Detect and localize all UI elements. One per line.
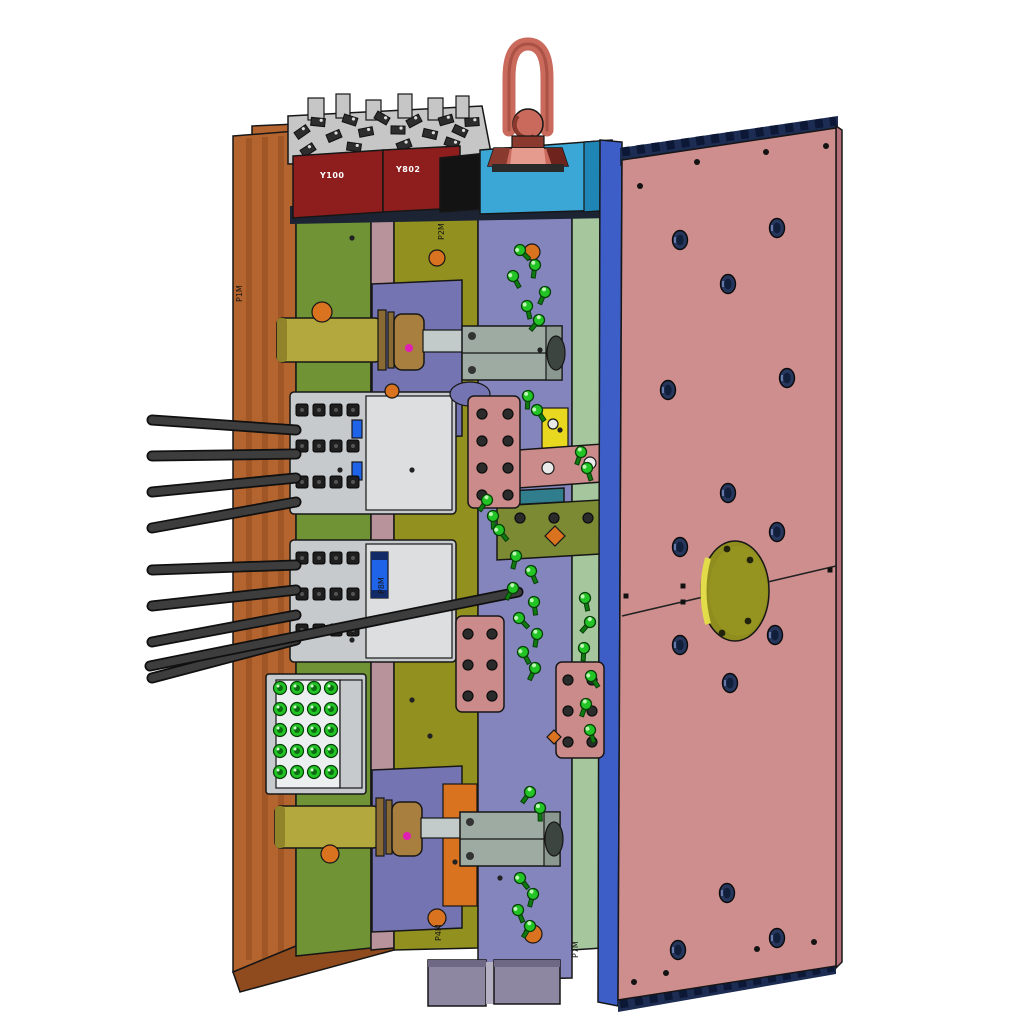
- screw-dot: [427, 733, 432, 738]
- screw-head: [548, 419, 558, 429]
- coupler-highlight: [328, 748, 331, 751]
- fitting-body: [578, 642, 590, 654]
- coupler-highlight: [294, 685, 297, 688]
- part-mark: P1M: [235, 285, 244, 302]
- fitting-body: [529, 259, 541, 271]
- corner-screw: [694, 159, 700, 165]
- parting-tick: [681, 600, 686, 605]
- corner-screw: [823, 143, 829, 149]
- gland-fitting: [391, 126, 405, 134]
- locating-ring-inner: [709, 546, 767, 636]
- coupler-highlight: [311, 706, 314, 709]
- coupler-highlight: [277, 727, 280, 730]
- part-mark: P8M: [377, 577, 386, 594]
- coolant-coupler: [325, 766, 338, 779]
- gland-bump: [428, 98, 443, 120]
- ring-screw: [724, 546, 731, 553]
- plate-hole: [721, 275, 736, 294]
- sensor-dot-magenta: [403, 832, 411, 840]
- screw-head: [477, 436, 487, 446]
- screw-head: [463, 691, 473, 701]
- part-mark: P4M: [434, 924, 443, 941]
- plate-hole: [723, 674, 738, 693]
- plate-hole: [673, 636, 688, 655]
- hole-bore: [676, 640, 683, 651]
- lifting-eye-collar: [512, 136, 544, 148]
- part-mark: P2M: [437, 223, 446, 240]
- coupler-highlight: [311, 685, 314, 688]
- mount-bolt: [468, 332, 476, 340]
- screw-head: [503, 490, 513, 500]
- screw-head: [477, 463, 487, 473]
- screw-head: [542, 462, 554, 474]
- ring-screw: [745, 618, 752, 625]
- cylinder-rib: [376, 798, 384, 856]
- hole-bore: [676, 542, 683, 553]
- hole-bore: [783, 373, 790, 384]
- plate-hole: [768, 626, 783, 645]
- screw-dot: [337, 467, 342, 472]
- coupler-highlight: [328, 685, 331, 688]
- coupler-block-bottom: [266, 674, 366, 794]
- screw-dot: [497, 875, 502, 880]
- parting-tick: [624, 594, 629, 599]
- plate-lamination: [246, 138, 252, 960]
- screw-dot: [537, 347, 542, 352]
- screw-head: [503, 463, 513, 473]
- corner-screw: [663, 970, 669, 976]
- hole-bore: [724, 488, 731, 499]
- terminal-pin-center: [317, 592, 321, 596]
- coolant-coupler: [308, 766, 321, 779]
- cavity-plate-edge-pale-green: [572, 208, 602, 950]
- mount-bore: [545, 822, 563, 856]
- hole-bore: [724, 279, 731, 290]
- gland-fitting-body: [391, 126, 405, 134]
- coupler-highlight: [311, 748, 314, 751]
- hole-bore: [771, 630, 778, 641]
- hex-facet-front: [510, 148, 546, 166]
- ring-screw: [747, 557, 754, 564]
- cylinder-coupling: [394, 314, 424, 370]
- screw-head: [487, 660, 497, 670]
- cylinder-body: [277, 318, 381, 362]
- gland-bump: [456, 96, 469, 118]
- coolant-coupler: [308, 703, 321, 716]
- cable: [152, 454, 296, 456]
- coolant-coupler: [274, 724, 287, 737]
- terminal-pin-center: [317, 408, 321, 412]
- hole-bore: [664, 385, 671, 396]
- terminal-pin-center: [317, 480, 321, 484]
- junction-box-1-label: Y100: [319, 171, 345, 180]
- cylinder-rod: [423, 330, 463, 352]
- coupler-highlight: [277, 685, 280, 688]
- insert-orange: [321, 845, 339, 863]
- coolant-coupler: [325, 703, 338, 716]
- terminal-pin-center: [334, 480, 338, 484]
- screw-head: [563, 737, 573, 747]
- terminal-pin-center: [300, 556, 304, 560]
- coupler-highlight: [294, 748, 297, 751]
- screw-dot: [557, 427, 562, 432]
- coolant-coupler: [291, 745, 304, 758]
- cable: [152, 565, 296, 570]
- parting-tick: [681, 584, 686, 589]
- terminal-pin-center: [351, 592, 355, 596]
- sensor-dot-magenta: [405, 344, 413, 352]
- gland-bump: [336, 94, 350, 118]
- front-clamping-plate-group: [618, 116, 842, 1012]
- fitting-body: [487, 510, 498, 521]
- coupler-highlight: [328, 769, 331, 772]
- coupler-highlight: [328, 706, 331, 709]
- coolant-coupler: [325, 724, 338, 737]
- coupler-highlight: [277, 748, 280, 751]
- coolant-coupler: [274, 682, 287, 695]
- ring-screw: [719, 630, 726, 637]
- hole-bore: [773, 527, 780, 538]
- corner-screw: [763, 149, 769, 155]
- blue-terminal: [352, 420, 362, 438]
- terminal-block-top-side: [366, 396, 452, 510]
- terminal-pin-center: [334, 592, 338, 596]
- foot-gap: [486, 962, 494, 1004]
- terminal-pin-center: [351, 556, 355, 560]
- cylinder-rib: [388, 312, 394, 368]
- plate-hole: [720, 884, 735, 903]
- terminal-pin-center: [351, 480, 355, 484]
- terminal-pin-center: [334, 556, 338, 560]
- coupler-highlight: [294, 727, 297, 730]
- hole-bore: [773, 933, 780, 944]
- coolant-coupler: [308, 724, 321, 737]
- terminal-pin-center: [317, 444, 321, 448]
- screw-head: [487, 629, 497, 639]
- gland-bump: [308, 98, 324, 120]
- coupler-highlight: [277, 706, 280, 709]
- coolant-coupler: [291, 682, 304, 695]
- hole-bore: [773, 223, 780, 234]
- coolant-coupler: [291, 703, 304, 716]
- mount-bolt: [466, 852, 474, 860]
- fitting-body: [522, 390, 534, 402]
- coupler-highlight: [328, 727, 331, 730]
- mount-bore: [547, 336, 565, 370]
- cylinder-coupling: [392, 802, 422, 856]
- coupler-highlight: [311, 769, 314, 772]
- cylinder-rib: [386, 800, 392, 854]
- cylinder-rod: [421, 818, 461, 838]
- part-mark: P7M: [571, 941, 580, 958]
- valve-cap: [371, 552, 388, 560]
- coupler-highlight: [311, 727, 314, 730]
- coupler-highlight: [294, 706, 297, 709]
- terminal-pin-center: [300, 444, 304, 448]
- coolant-coupler: [308, 682, 321, 695]
- terminal-pin-center: [317, 556, 321, 560]
- insert-orange: [312, 302, 332, 322]
- plate-hole: [671, 941, 686, 960]
- gland-fitting-body: [465, 118, 480, 127]
- screw-head: [463, 660, 473, 670]
- screw-dot: [409, 467, 414, 472]
- terminal-pin-center: [334, 408, 338, 412]
- insert-orange: [429, 250, 445, 266]
- screw-dot: [349, 637, 354, 642]
- screw-head: [549, 513, 559, 523]
- screw-head: [563, 706, 573, 716]
- plate-hole: [661, 381, 676, 400]
- support-feet: [428, 960, 560, 1006]
- lifting-eye: [488, 44, 568, 172]
- fitting-body: [534, 802, 545, 813]
- foot-bevel: [428, 960, 486, 967]
- gland-fitting: [311, 117, 326, 126]
- screw-head: [503, 436, 513, 446]
- coolant-coupler: [274, 703, 287, 716]
- corner-screw: [631, 979, 637, 985]
- coolant-coupler: [291, 766, 304, 779]
- junction-box-2-label: Y802: [395, 165, 421, 174]
- parting-tick: [828, 568, 833, 573]
- screw-dot: [349, 235, 354, 240]
- gland-fitting-body: [311, 117, 326, 126]
- cad-screenshot: Y100 Y802: [0, 0, 1024, 1024]
- hole-bore: [674, 945, 681, 956]
- corner-screw: [811, 939, 817, 945]
- terminal-pin-center: [351, 408, 355, 412]
- coupler-highlight: [294, 769, 297, 772]
- coolant-coupler: [325, 745, 338, 758]
- terminal-pin-center: [334, 444, 338, 448]
- cylinder-rib: [378, 310, 386, 370]
- terminal-pin-center: [351, 444, 355, 448]
- coolant-coupler: [274, 766, 287, 779]
- plate-side-face: [836, 126, 842, 968]
- terminal-pin-center: [300, 408, 304, 412]
- screw-head: [583, 513, 593, 523]
- plate-lamination: [262, 137, 268, 959]
- plate-hole: [770, 929, 785, 948]
- coolant-coupler: [308, 745, 321, 758]
- cylinder-cap: [277, 318, 287, 362]
- mount-bolt: [468, 366, 476, 374]
- junction-box-1: [293, 150, 383, 218]
- plate-hole: [721, 484, 736, 503]
- plate-hole: [770, 219, 785, 238]
- screw-head: [477, 409, 487, 419]
- coolant-coupler: [325, 682, 338, 695]
- coupler-highlight: [277, 769, 280, 772]
- hole-bore: [676, 235, 683, 246]
- foot-bevel: [494, 960, 560, 967]
- fitting-body: [528, 596, 540, 608]
- corner-screw: [754, 946, 760, 952]
- plate-hole: [673, 538, 688, 557]
- insert-orange: [385, 384, 399, 398]
- screw-head: [503, 409, 513, 419]
- cylinder-body: [275, 806, 379, 848]
- coolant-coupler: [274, 745, 287, 758]
- plate-hole: [780, 369, 795, 388]
- locating-ring: [701, 541, 769, 641]
- corner-screw: [637, 183, 643, 189]
- screw-dot: [452, 859, 457, 864]
- coupler-block-side: [340, 680, 362, 788]
- cylinder-cap: [275, 806, 285, 848]
- injection-mold-assembly-view: Y100 Y802: [0, 0, 1024, 1024]
- screw-dot: [409, 697, 414, 702]
- screw-head: [463, 629, 473, 639]
- gland-fitting-body: [347, 142, 362, 152]
- lifting-eye-seat: [492, 164, 564, 172]
- gland-bump: [398, 94, 412, 118]
- plate-hole: [770, 523, 785, 542]
- screw-head: [563, 675, 573, 685]
- screw-head: [487, 691, 497, 701]
- hole-bore: [726, 678, 733, 689]
- gland-fitting: [465, 118, 480, 127]
- coolant-coupler: [291, 724, 304, 737]
- gland-fitting: [347, 142, 362, 152]
- plate-hole: [673, 231, 688, 250]
- mount-bolt: [466, 818, 474, 826]
- screw-head: [515, 513, 525, 523]
- hole-bore: [723, 888, 730, 899]
